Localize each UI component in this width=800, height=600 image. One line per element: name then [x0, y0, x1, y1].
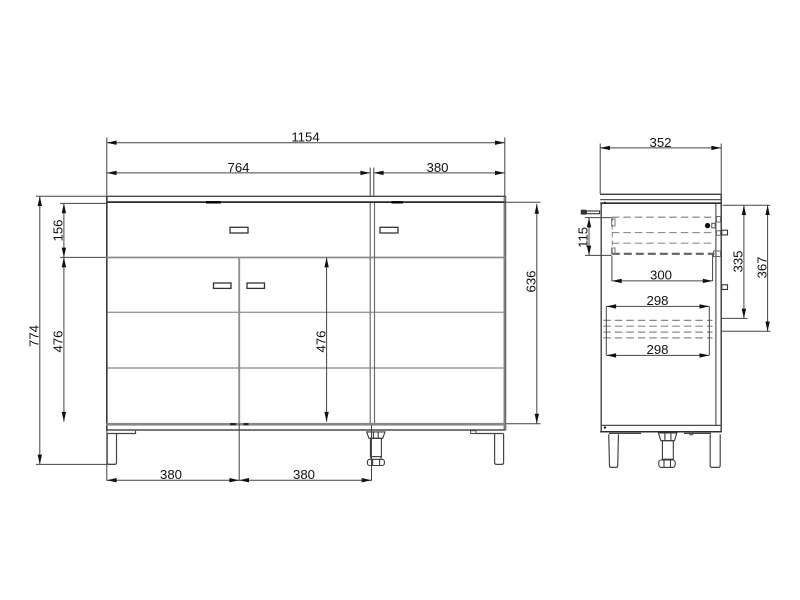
svg-text:298: 298: [646, 293, 668, 308]
svg-text:115: 115: [576, 227, 591, 248]
svg-text:335: 335: [731, 250, 746, 272]
svg-text:1154: 1154: [291, 130, 319, 145]
svg-text:764: 764: [227, 160, 249, 175]
svg-text:156: 156: [51, 219, 66, 241]
svg-text:300: 300: [650, 268, 672, 283]
svg-text:380: 380: [160, 467, 182, 482]
svg-text:352: 352: [649, 135, 671, 150]
svg-text:367: 367: [754, 256, 769, 278]
svg-text:636: 636: [523, 270, 538, 292]
svg-text:380: 380: [293, 467, 315, 482]
svg-text:476: 476: [51, 330, 66, 352]
svg-text:774: 774: [27, 325, 42, 347]
svg-text:476: 476: [313, 330, 328, 352]
svg-text:380: 380: [426, 160, 448, 175]
svg-text:298: 298: [646, 342, 668, 357]
